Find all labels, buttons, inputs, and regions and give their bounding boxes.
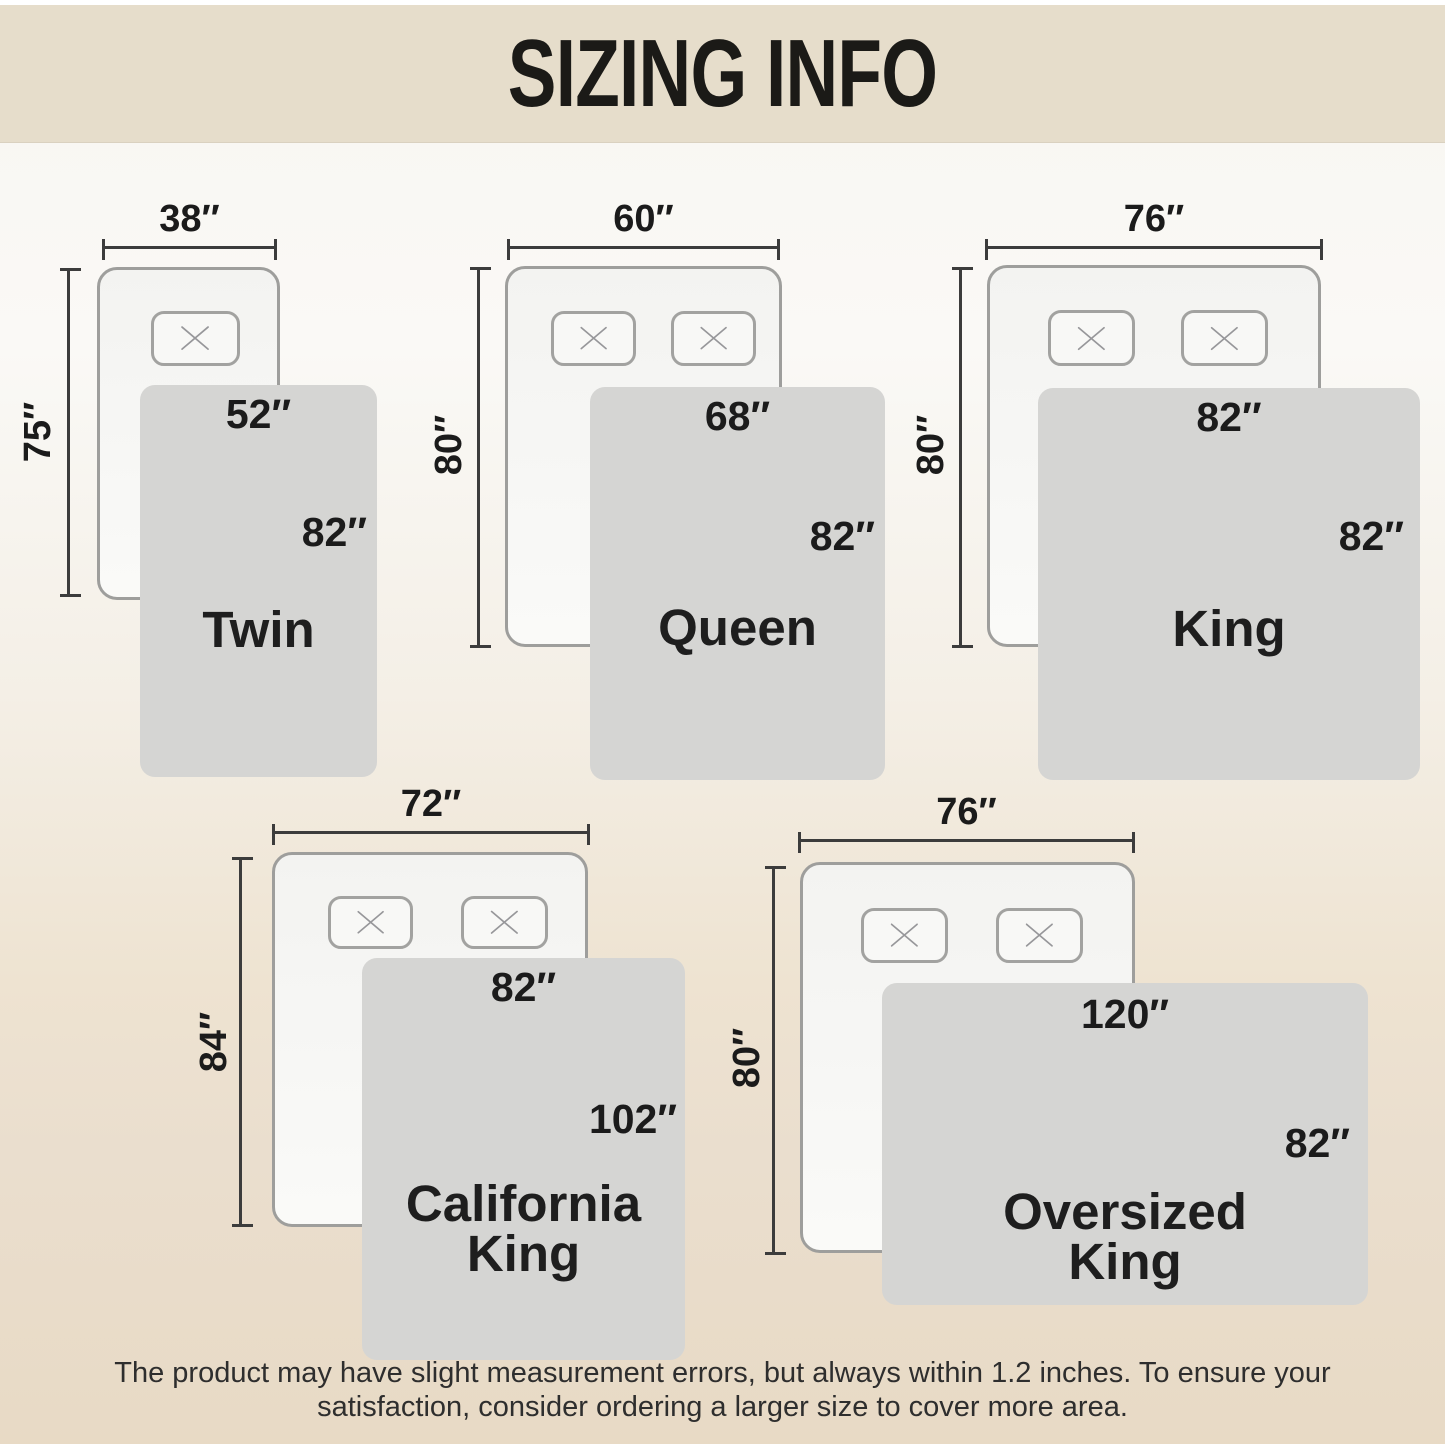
mattress-width-dimension-label: 76″: [798, 789, 1135, 835]
pillow: [861, 908, 948, 963]
bed-name-line-2: King: [882, 1237, 1368, 1287]
blanket-height-label: 82″: [1285, 1120, 1350, 1167]
bed-name-line-1: Oversized: [882, 1187, 1368, 1237]
bed-name-label: Oversized King: [882, 1187, 1368, 1287]
pillow-x-icon: [1011, 915, 1068, 955]
pillow-x-icon: [876, 915, 933, 955]
pillow: [996, 908, 1083, 963]
sizing-infographic: SIZING INFO 38″ 75″ 52″ 82″ Twin 60″ 80″: [0, 0, 1445, 1444]
footer-line-1: The product may have slight measurement …: [0, 1356, 1445, 1390]
bed-diagram-oversized-king: 76″ 80″ 120″ 82″ Oversized King: [0, 0, 1445, 1444]
mattress-height-dimension-label: 80″: [727, 998, 767, 1118]
footer-line-2: satisfaction, consider ordering a larger…: [0, 1390, 1445, 1424]
blanket-width-label: 120″: [882, 991, 1368, 1038]
blanket: 120″ 82″ Oversized King: [882, 983, 1368, 1305]
height-dimension-line: [772, 866, 775, 1255]
width-dimension-line: [798, 839, 1135, 842]
footer-note: The product may have slight measurement …: [0, 1356, 1445, 1424]
